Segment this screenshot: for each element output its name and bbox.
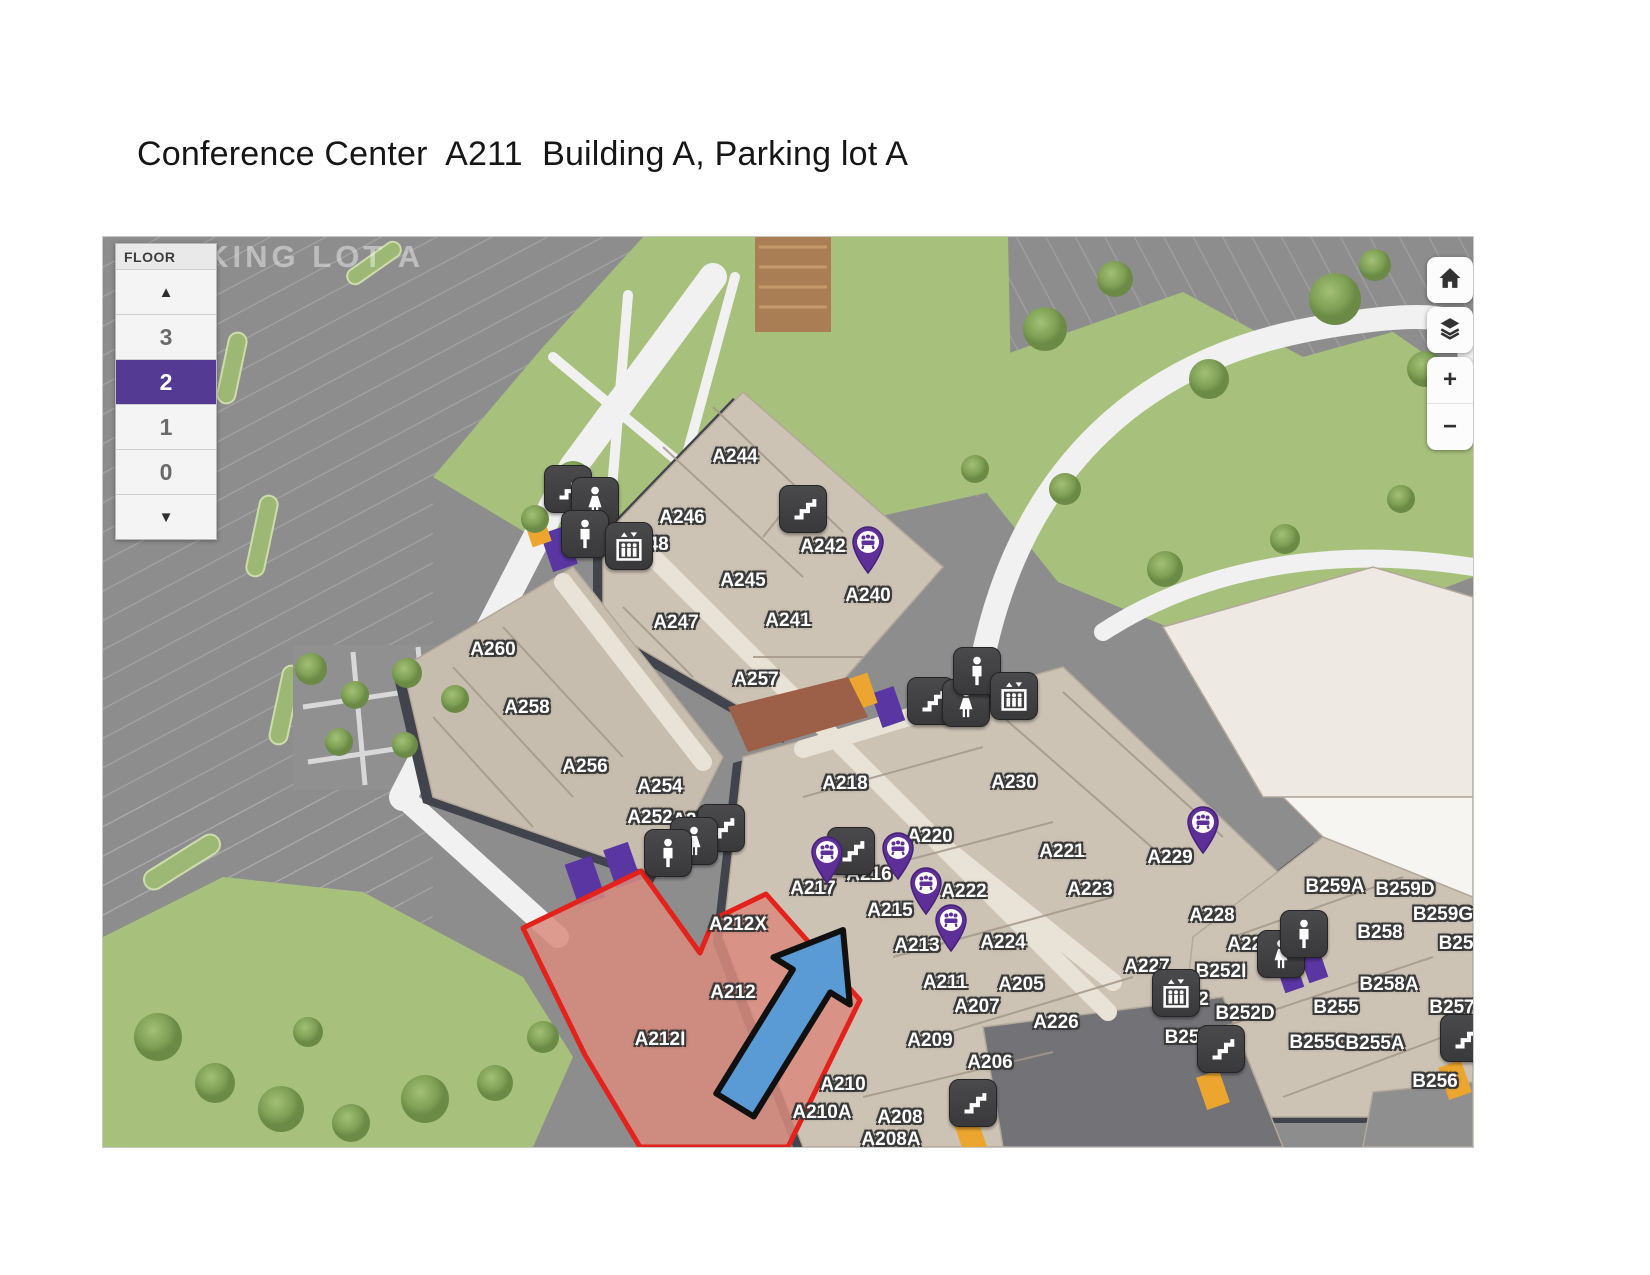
conference-room-pin[interactable] <box>1184 806 1222 854</box>
room-label-a256: A256 <box>562 756 607 778</box>
room-label-b258: B258 <box>1357 922 1402 944</box>
room-label-a247: A247 <box>653 612 698 634</box>
floor-down-button[interactable]: ▼ <box>116 494 216 539</box>
restroom-men-icon[interactable] <box>644 829 692 877</box>
room-label-b255a: B255A <box>1345 1033 1404 1055</box>
layers-control <box>1427 307 1473 353</box>
room-label-a207: A207 <box>954 996 999 1018</box>
elevator-icon[interactable] <box>990 672 1038 720</box>
room-label-a208: A208 <box>877 1107 922 1129</box>
floor-up-button[interactable]: ▲ <box>116 269 216 314</box>
room-label-a206: A206 <box>967 1052 1012 1074</box>
conference-room-pin[interactable] <box>932 904 970 952</box>
room-label-a228: A228 <box>1189 905 1234 927</box>
room-label-b255c: B255C <box>1289 1032 1348 1054</box>
room-label-b255: B255 <box>1313 997 1358 1019</box>
room-label-b252i: B252I <box>1196 961 1247 983</box>
room-label-a260: A260 <box>470 639 515 661</box>
room-label-b256: B256 <box>1412 1071 1457 1093</box>
room-label-a215: A215 <box>867 900 912 922</box>
conference-room-pin[interactable] <box>849 526 887 574</box>
room-label-a205: A205 <box>998 974 1043 996</box>
room-label-a254: A254 <box>637 776 682 798</box>
floor-button-0[interactable]: 0 <box>116 449 216 494</box>
stairs-icon[interactable] <box>949 1079 997 1127</box>
room-label-a210: A210 <box>820 1074 865 1096</box>
conference-room-pin[interactable] <box>808 836 846 884</box>
room-label-a212i: A212I <box>635 1029 686 1051</box>
room-label-a211: A211 <box>923 972 967 994</box>
layers-icon <box>1436 314 1464 347</box>
stairs-icon[interactable] <box>1197 1025 1245 1073</box>
room-label-a244: A244 <box>712 446 757 468</box>
room-label-a230: A230 <box>991 772 1036 794</box>
campus-map[interactable]: PARKING LOT A A244A246A248A242A245A240A2… <box>103 237 1473 1147</box>
layers-button[interactable] <box>1427 307 1473 353</box>
room-label-b259g: B259G <box>1413 904 1473 926</box>
zoom-in-button[interactable]: + <box>1427 357 1473 404</box>
zoom-out-button[interactable]: − <box>1427 404 1473 450</box>
floor-selector-header: FLOOR <box>116 244 216 269</box>
room-label-b258a: B258A <box>1359 974 1418 996</box>
stairs-icon[interactable] <box>779 485 827 533</box>
room-label-a258: A258 <box>504 697 549 719</box>
room-label-a245: A245 <box>720 570 765 592</box>
room-label-a221: A221 <box>1039 841 1084 863</box>
room-label-a240: A240 <box>845 585 890 607</box>
home-control <box>1427 257 1473 303</box>
room-label-a257: A257 <box>733 669 778 691</box>
home-button[interactable] <box>1427 257 1473 303</box>
room-label-a223: A223 <box>1067 879 1112 901</box>
room-label-b25: B25 <box>1165 1027 1200 1049</box>
room-label-a226: A226 <box>1033 1012 1078 1034</box>
room-label-b25: B25 <box>1439 933 1473 955</box>
room-label-a212: A212 <box>710 982 755 1004</box>
room-label-a224: A224 <box>980 932 1025 954</box>
room-label-a209: A209 <box>907 1030 952 1052</box>
floor-button-3[interactable]: 3 <box>116 314 216 359</box>
room-label-a208a: A208A <box>861 1129 920 1147</box>
room-label-b259d: B259D <box>1375 879 1434 901</box>
room-label-b252d: B252D <box>1215 1003 1274 1025</box>
zoom-control: + − <box>1427 357 1473 450</box>
page: { "title": "Conference Center A211 Build… <box>0 0 1650 1275</box>
elevator-icon[interactable] <box>605 522 653 570</box>
elevator-icon[interactable] <box>1152 969 1200 1017</box>
room-label-a218: A218 <box>822 773 867 795</box>
room-label-a222: A222 <box>941 881 986 903</box>
floor-selector: FLOOR ▲ 3210 ▼ <box>115 243 217 540</box>
restroom-men-icon[interactable] <box>561 510 609 558</box>
room-label-a242: A242 <box>800 536 845 558</box>
room-label-b259a: B259A <box>1305 876 1364 898</box>
room-label-a210a: A210A <box>792 1102 851 1124</box>
room-label-a212x: A212X <box>709 914 767 936</box>
floor-button-1[interactable]: 1 <box>116 404 216 449</box>
home-icon <box>1436 264 1464 297</box>
page-title: Conference Center A211 Building A, Parki… <box>137 135 908 174</box>
restroom-men-icon[interactable] <box>1280 910 1328 958</box>
room-label-a241: A241 <box>765 610 810 632</box>
stairs-icon[interactable] <box>1440 1014 1473 1062</box>
room-label-a252: A252 <box>627 807 672 829</box>
floor-button-2[interactable]: 2 <box>116 359 216 404</box>
room-label-a246: A246 <box>659 507 704 529</box>
